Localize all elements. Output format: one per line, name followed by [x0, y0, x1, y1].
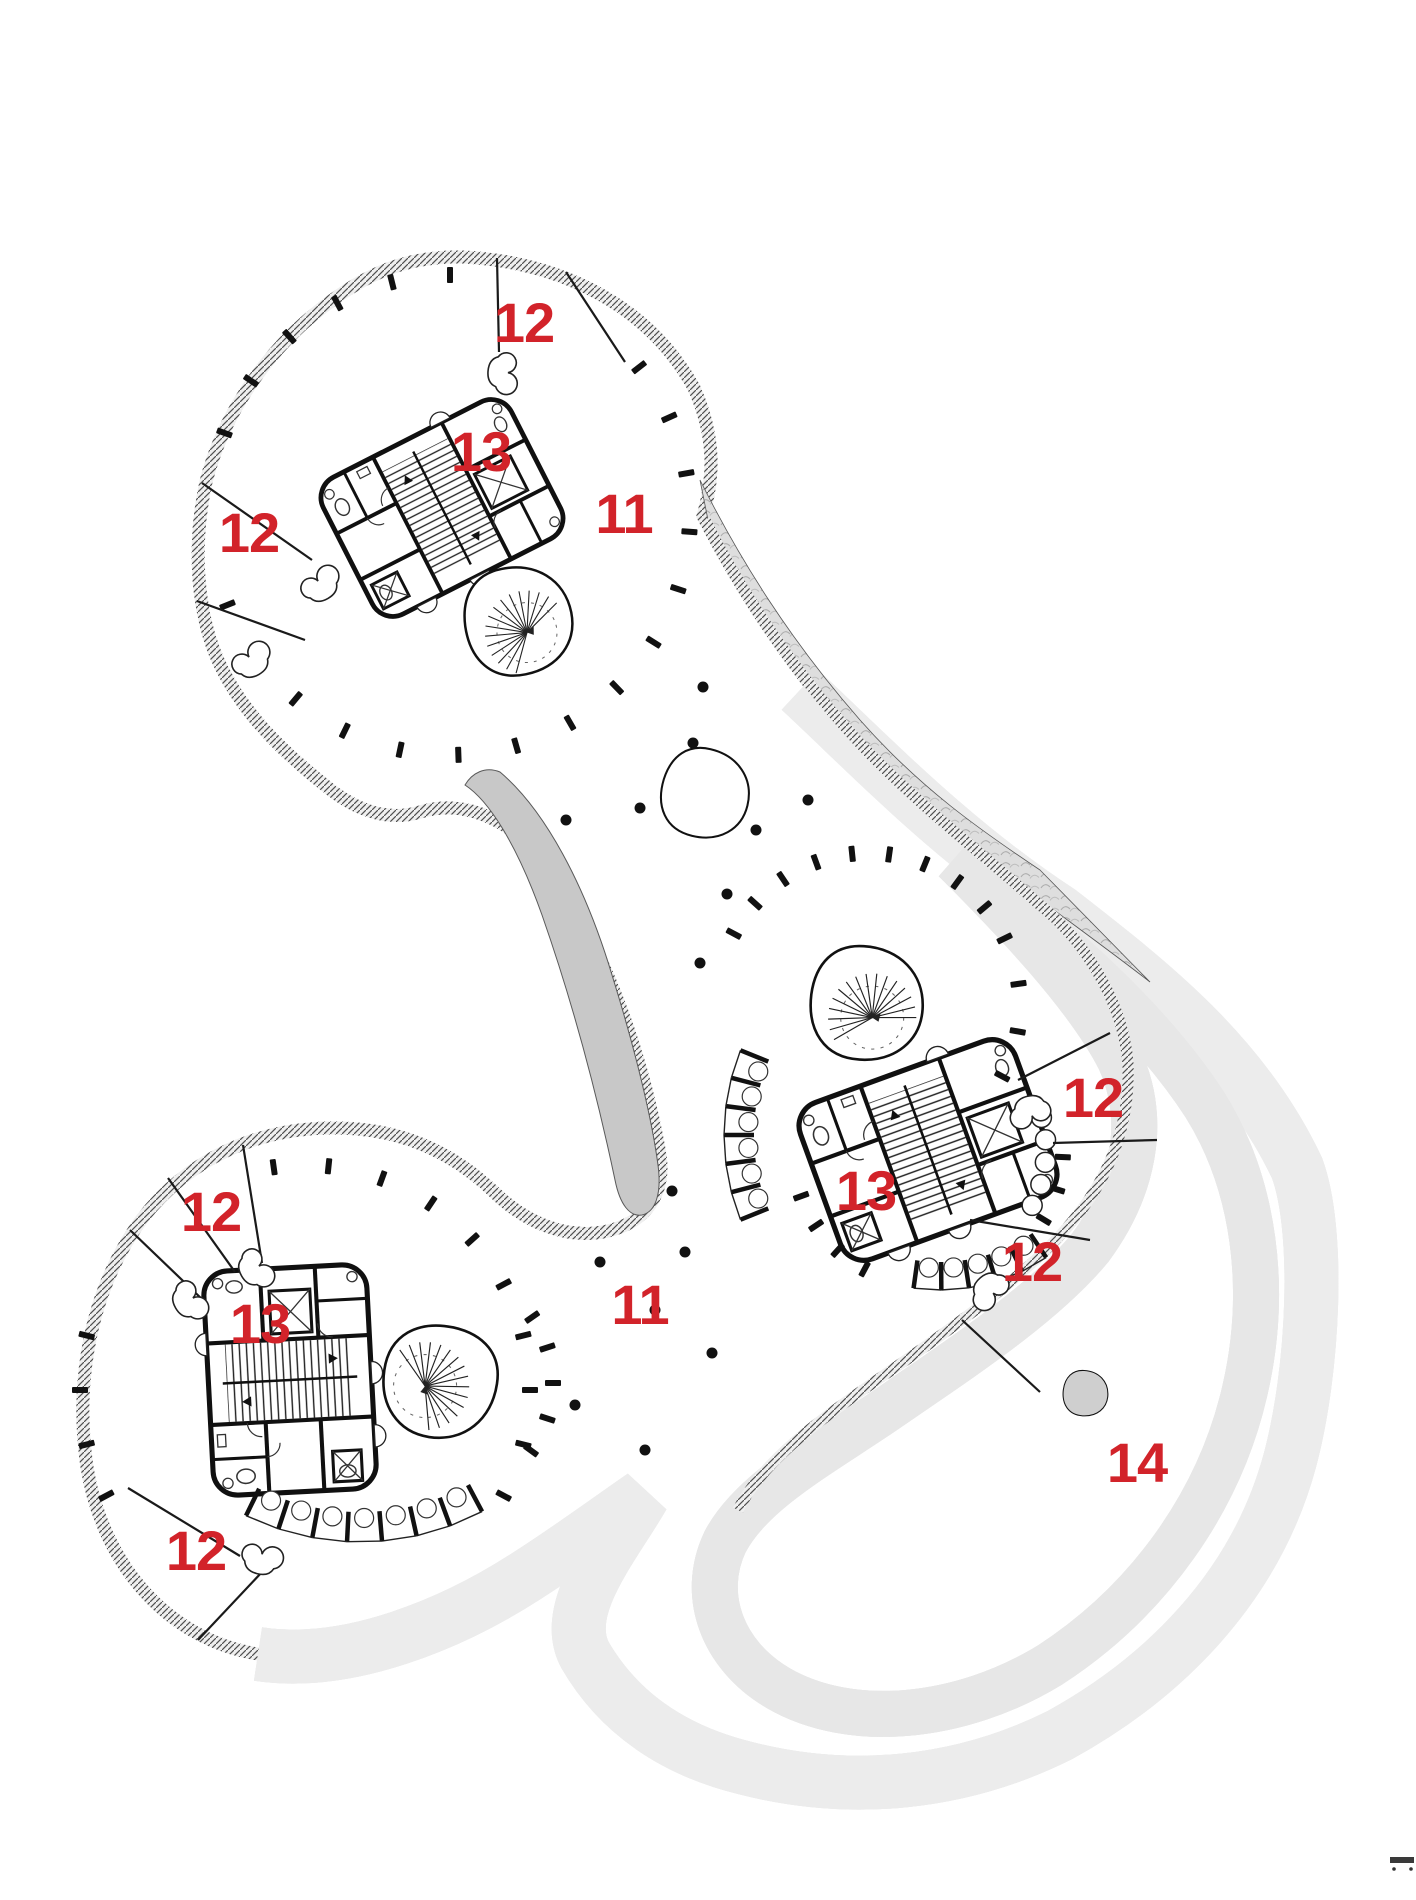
facade-tick	[681, 528, 697, 535]
label-terrace-north: 12	[494, 295, 554, 351]
label-core-southwest: 13	[230, 1296, 290, 1352]
planter-scallop	[447, 1488, 466, 1507]
planter-scallop	[742, 1087, 761, 1106]
door-arc	[1036, 1130, 1056, 1150]
label-core-central: 13	[836, 1163, 896, 1219]
label-roof-garden: 14	[1107, 1435, 1167, 1491]
facade-tick	[1055, 1154, 1071, 1161]
planter-scallop	[323, 1507, 342, 1526]
planter-scallop	[262, 1491, 281, 1510]
column-dot	[688, 738, 699, 749]
planter-scallop	[355, 1508, 374, 1527]
label-terrace-west: 12	[181, 1184, 241, 1240]
planter-scallop	[739, 1113, 758, 1132]
floor-plan-sheet: 12 12 13 11 12 13 12 12 13 11 12 14 // -…	[0, 0, 1416, 1900]
planter-edge	[347, 1541, 382, 1542]
planter-wall	[347, 1512, 348, 1542]
label-terrace-southeast: 12	[1002, 1234, 1062, 1290]
column-dot	[667, 1186, 678, 1197]
corner-print-mark	[1390, 1857, 1414, 1871]
planter-scallop	[417, 1499, 436, 1518]
column-dot	[698, 682, 709, 693]
facade-tick	[447, 267, 453, 283]
facade-tick	[455, 747, 462, 763]
column-dot	[595, 1257, 606, 1268]
column-dot	[680, 1247, 691, 1258]
label-core-north: 13	[451, 424, 511, 480]
column-dot	[561, 815, 572, 826]
planter-scallop	[292, 1501, 311, 1520]
column-dot	[635, 803, 646, 814]
label-floor-north: 11	[595, 486, 652, 542]
column-dot	[751, 825, 762, 836]
planter-wall	[379, 1511, 382, 1541]
planter-scallop	[749, 1062, 768, 1081]
planter-scallop	[749, 1189, 768, 1208]
door-arc	[1035, 1152, 1055, 1172]
column-dot	[722, 889, 733, 900]
facade-tick	[522, 1387, 538, 1393]
label-terrace-northwest: 12	[219, 505, 279, 561]
label-terrace-east: 12	[1063, 1070, 1123, 1126]
planter-scallop	[739, 1138, 758, 1157]
column-dot	[640, 1445, 651, 1456]
floor-plan-drawing	[0, 0, 1416, 1900]
facade-tick	[72, 1387, 88, 1393]
column-dot	[570, 1400, 581, 1411]
door-arc	[1022, 1195, 1042, 1215]
garden-pebble-blob	[1063, 1370, 1108, 1415]
facade-tick	[545, 1380, 561, 1386]
column-dot	[695, 958, 706, 969]
planter-scallop	[944, 1258, 963, 1277]
planter-scallop	[919, 1258, 938, 1277]
column-dot	[803, 795, 814, 806]
planter-scallop	[386, 1506, 405, 1525]
column-dot	[707, 1348, 718, 1359]
label-terrace-south: 12	[166, 1523, 226, 1579]
planter-scallop	[968, 1254, 987, 1273]
label-floor-south: 11	[611, 1277, 668, 1333]
door-arc	[1031, 1174, 1051, 1194]
spiral-stair-central	[811, 946, 923, 1060]
planter-scallop	[742, 1164, 761, 1183]
